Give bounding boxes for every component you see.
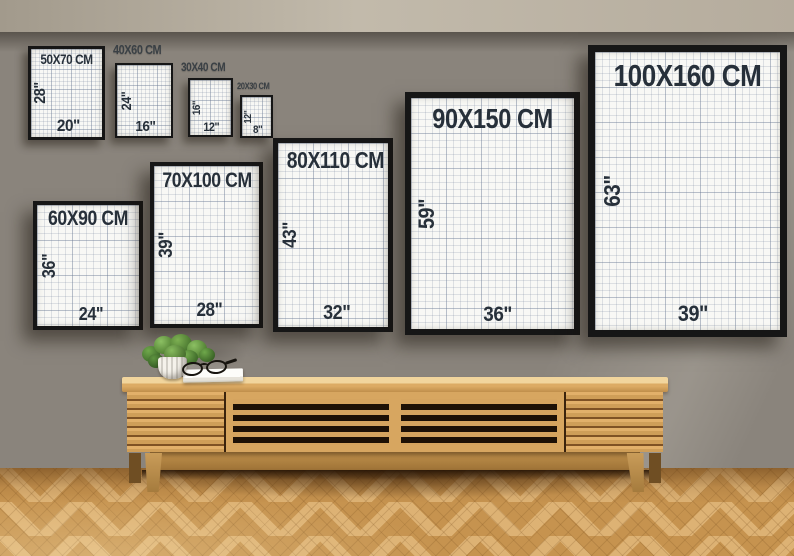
sideboard-vent-right	[401, 399, 557, 445]
graph-paper: 50X70 CM 28" 20"	[31, 49, 102, 137]
frame-height-label: 36"	[39, 253, 60, 277]
graph-paper: 24" 16"	[117, 65, 171, 136]
frame-width-label: 28"	[165, 300, 254, 322]
graph-paper: 60X90 CM 36" 24"	[37, 205, 139, 326]
frame-100x160: 100X160 CM 63" 39"	[588, 45, 787, 337]
frame-size-title: 50X70 CM	[37, 51, 97, 67]
frame-width-label: 8"	[245, 124, 270, 136]
sideboard-vent-left	[233, 399, 389, 445]
frame-size-title: 70X100 CM	[162, 169, 250, 193]
wall-size-label-40x60: 40X60 CM	[113, 42, 161, 57]
frame-70x100: 70X100 CM 39" 28"	[150, 162, 263, 328]
frame-20x30: 12" 8"	[240, 95, 273, 138]
frame-size-title: 100X160 CM	[610, 58, 765, 94]
wall-size-label-20x30: 20X30 CM	[237, 81, 269, 91]
sideboard	[122, 377, 668, 495]
graph-paper: 80X110 CM 43" 32"	[278, 143, 388, 327]
graph-paper: 100X160 CM 63" 39"	[595, 52, 780, 330]
frame-width-label: 36"	[428, 303, 566, 327]
eyeglasses-bridge	[199, 363, 208, 369]
frame-height-label: 43"	[280, 222, 302, 248]
frame-40x60: 24" 16"	[115, 63, 173, 138]
graph-paper: 70X100 CM 39" 28"	[154, 166, 259, 324]
eyeglasses-temple-arm	[225, 358, 237, 364]
frame-size-title: 90X150 CM	[424, 103, 561, 135]
frame-60x90: 60X90 CM 36" 24"	[33, 201, 143, 330]
frame-height-label: 63"	[599, 175, 626, 207]
frame-height-label: 16"	[191, 100, 203, 114]
sideboard-front-right-leg	[627, 453, 647, 492]
frame-30x40: 16" 12"	[188, 78, 233, 137]
sideboard-middle-section	[226, 392, 564, 452]
wall-size-label-30x40: 30X40 CM	[181, 60, 225, 74]
sideboard-front-left-leg	[145, 453, 162, 492]
frame-size-title: 60X90 CM	[45, 207, 131, 231]
graph-paper: 16" 12"	[190, 80, 231, 135]
frame-height-label: 24"	[118, 91, 134, 110]
frame-width-label: 24"	[48, 304, 134, 325]
eyeglasses	[181, 358, 237, 375]
room-scene: 40X60 CM 30X40 CM 20X30 CM 50X70 CM 28" …	[0, 0, 794, 556]
frame-height-label: 28"	[32, 82, 50, 104]
sideboard-left-door	[127, 392, 224, 452]
frame-width-label: 39"	[615, 301, 772, 327]
ceiling	[0, 0, 794, 32]
sideboard-front	[127, 392, 663, 452]
frame-width-label: 12"	[194, 120, 229, 134]
graph-paper: 90X150 CM 59" 36"	[411, 98, 574, 329]
sideboard-back-right-leg	[649, 453, 661, 483]
frame-80x110: 80X110 CM 43" 32"	[273, 138, 393, 332]
frame-width-label: 20"	[39, 116, 99, 136]
frame-height-label: 39"	[156, 232, 178, 258]
sideboard-back-left-leg	[129, 453, 141, 483]
frame-height-label: 59"	[414, 198, 440, 228]
frame-height-label: 12"	[243, 110, 254, 123]
frame-size-title: 80X110 CM	[287, 147, 379, 174]
frame-width-label: 32"	[290, 302, 383, 325]
graph-paper: 12" 8"	[242, 97, 271, 136]
sideboard-right-door	[566, 392, 663, 452]
frame-50x70: 50X70 CM 28" 20"	[28, 46, 105, 140]
sideboard-bottom-rail	[150, 452, 640, 470]
frame-width-label: 16"	[123, 118, 169, 135]
frame-90x150: 90X150 CM 59" 36"	[405, 92, 580, 335]
